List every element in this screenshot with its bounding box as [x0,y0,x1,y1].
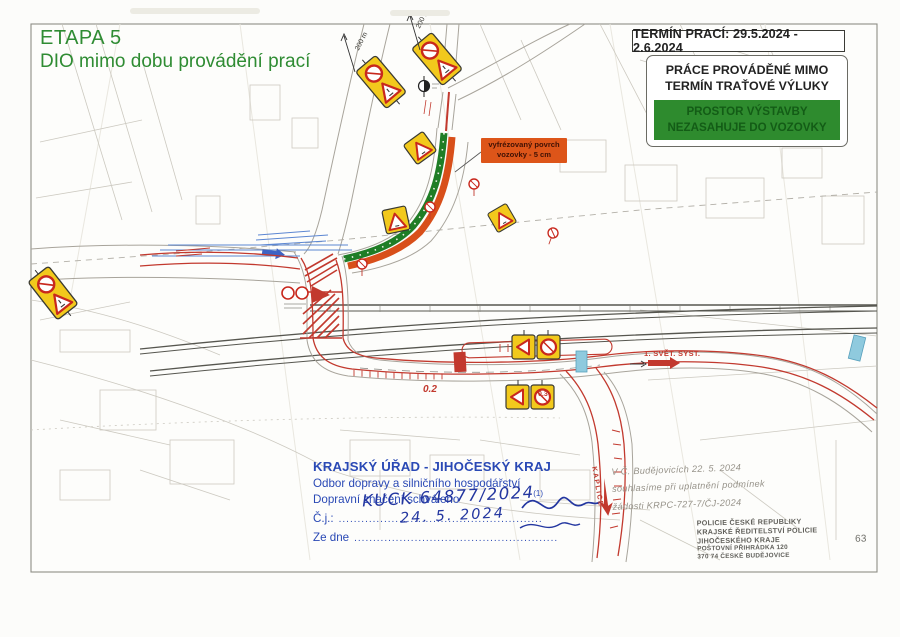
chainage-label-2: 0.3 [538,391,548,398]
warning-sign-2 [382,206,410,234]
police-stamp: POLICIE ČESKÉ REPUBLIKY KRAJSKÉ ŘEDITELS… [697,516,868,562]
plan-title: ETAPA 5 DIO mimo dobu provádění prací [40,27,310,73]
sign-cluster-circle-1 [282,287,294,299]
stamp-ref-label: Č.j.: [313,512,334,525]
prostor-vystavby-badge: PROSTOR VÝSTAVBY NEZASAHUJE DO VOZOVKY [654,100,840,139]
police-stamp-region: JIHOČESKÉHO KRAJE [697,535,780,545]
police-stamp-number: 63 [855,534,867,547]
crossing-block [453,352,466,373]
chainage-label-1: 0.2 [423,384,437,395]
prace-line-2: TERMÍN TRAŤOVÉ VÝLUKY [651,78,843,94]
dio-plan-page: ETAPA 5 DIO mimo dobu provádění prací TE… [0,0,900,637]
stamp-date-label: Ze dne [313,531,349,544]
milled-line-2: vozovky - 5 cm [482,150,566,160]
termin-praci-text: TERMÍN PRACÍ: 29.5.2024 - 2.6.2024 [633,27,844,55]
stamp-date-line: Ze dne .................................… [313,529,567,544]
prace-mimo-box: PRÁCE PROVÁDĚNÉ MIMO TERMÍN TRAŤOVÉ VÝLU… [646,55,848,147]
pencil-note: V Č. Budějovicích 22. 5. 2024 souhlasíme… [611,456,833,516]
scan-smudge-1 [130,8,260,14]
prostor-line-2: NEZASAHUJE DO VOZOVKY [656,120,838,136]
etapa-title: ETAPA 5 [40,27,310,51]
milled-line-1: vyfrézovaný povrch [482,140,566,150]
sign-cluster-circle-2 [296,287,308,299]
termin-praci-box: TERMÍN PRACÍ: 29.5.2024 - 2.6.2024 [632,30,845,52]
stamp-date-dots: ........................................… [354,533,567,544]
stamp-authority: KRAJSKÝ ÚŘAD - JIHOČESKÝ KRAJ [313,459,567,474]
prace-line-1: PRÁCE PROVÁDĚNÉ MIMO [651,62,843,78]
milled-surface-label: vyfrézovaný povrch vozovky - 5 cm [481,138,567,163]
dio-subtitle: DIO mimo dobu provádění prací [40,51,310,73]
scan-smudge-2 [390,10,450,16]
prostor-line-1: PROSTOR VÝSTAVBY [656,104,838,120]
direction-label-east: 1. SVĚT. SYST. [644,349,700,358]
